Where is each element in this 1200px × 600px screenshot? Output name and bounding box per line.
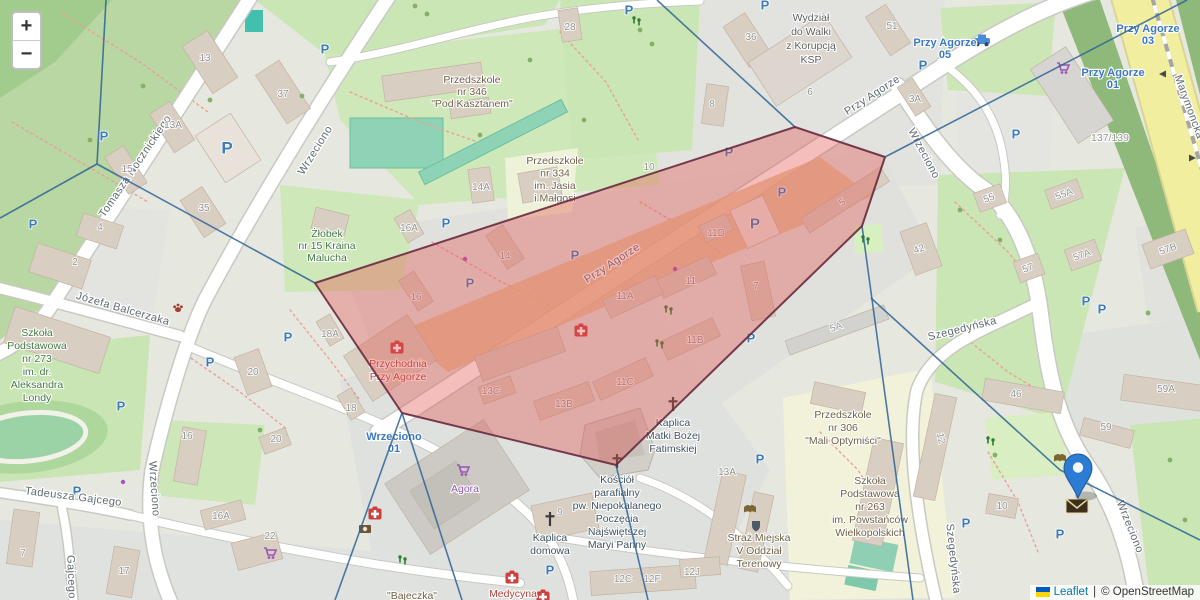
building-number: 20 [247,367,259,378]
library-book-icon [1054,454,1066,462]
building-number: 28 [564,22,576,33]
building-number: 51 [886,21,898,32]
building-number: 7 [20,548,26,559]
poi-label-line: z Korupcją [786,40,836,52]
ukraine-flag-icon [1036,587,1050,597]
parking-icon: P [1056,527,1065,542]
shop-dot-icon [121,480,125,484]
building-number: 14A [472,182,490,193]
map-canvas[interactable]: PPPPPPPPPPPPPPPPPPPPPPPPP Tomasza Noczni… [0,0,1200,600]
tree-icon [650,42,655,47]
building-number: 13A [718,467,736,478]
tree-icon [413,4,418,9]
transit-stop-line: Przy Agorze [1081,67,1144,79]
tree-icon [998,238,1003,243]
building-number: 20 [270,434,282,445]
tree-icon [425,12,430,17]
poi-label-line: "Mali Optymiści" [805,435,881,447]
poi-label-line: Przedszkole [443,74,500,86]
poi-label-line: Medycyna [489,588,537,600]
poi-label-line: parafialny [594,487,640,499]
poi-label-line: Terenowy [737,558,783,570]
building-number: 35 [198,203,210,214]
poi-label-line: Przedszkole [814,409,871,421]
parking-icon: P [1082,294,1091,309]
transit-stop-line: Przy Agorze [913,37,976,49]
poi-label-line: do Walki [791,26,831,38]
building-number: 13 [199,53,211,64]
building-number: 16A [400,223,418,234]
tree-icon [1183,518,1188,523]
tree-icon [993,453,998,458]
parking-icon: P [206,355,215,370]
poi-label-line: "Pod Kasztanem" [431,98,513,110]
zoom-out-button[interactable]: − [13,41,40,68]
parking-icon: P [919,58,928,73]
building-number: 17 [118,566,130,577]
tree-icon [141,84,146,89]
parking-icon: P [546,563,555,578]
poi-label-line: "Bajeczka" [387,590,437,600]
poi-label-line: nr 273 [22,353,52,365]
poi-label-line: Matki Bożej [646,430,700,442]
leaflet-link[interactable]: Leaflet [1054,586,1089,598]
poi-label-line: KSP [800,54,821,66]
poi-label-line: Malucha [307,252,347,264]
tree-icon [638,28,643,33]
zoom-control: + − [11,11,42,70]
post-office-envelope-icon [1066,499,1088,513]
building-number: 4 [97,222,103,233]
building-number: 18A [321,329,339,340]
tree-icon [528,58,533,63]
attribution-separator: | [1093,586,1096,598]
poi-label: Medycyna [489,588,537,600]
tree-icon [258,428,263,433]
building-number: 2 [72,257,78,268]
building-number: 12F [643,574,660,585]
parking-icon: P [442,216,451,231]
tree-icon [300,94,305,99]
poi-label: "Bajeczka" [387,590,437,600]
tree-icon [88,138,93,143]
poi-label-line: nr 334 [540,168,570,180]
building-number: 10 [643,162,655,173]
leaflet-attribution: Leaflet | © OpenStreetMap [1030,585,1200,600]
poi-label: Straż MiejskaV OddziałTerenowy [727,532,790,570]
building-number: 16 [181,431,193,442]
parking-icon: P [100,129,109,144]
poi-label-line: Żłobek [311,227,343,240]
parking-icon: P [117,399,126,414]
tree-icon [1168,458,1173,463]
poi-label-line: Poczęcia [596,513,639,525]
osm-link[interactable]: © OpenStreetMap [1101,586,1194,598]
parking-icon: P [1012,127,1021,142]
poi-label-line: nr 263 [855,501,885,513]
building-number: 6 [807,87,813,98]
poi-label-line: V Oddział [736,545,782,557]
poi-label-line: Wydział [793,12,830,24]
parking-icon: P [321,42,330,57]
tree-icon [208,98,213,103]
transit-stop-line: 03 [1142,35,1154,47]
poi-label-line: im. dr. [23,366,52,378]
poi-label-line: nr 306 [828,422,858,434]
poi-label-line: Szkoła [854,475,886,487]
poi-label-line: Fatimskiej [649,443,696,455]
poi-label-line: Kaplica [533,532,568,544]
building-number: 16A [212,511,230,522]
parking-icon: P [221,139,232,158]
building-number: 3A [909,94,922,105]
building-number: 18 [345,403,357,414]
poi-label-line: Aleksandra [11,379,64,391]
building-number: 46 [1010,389,1022,400]
poi-label-line: im. Jasia [534,180,576,192]
library-book-icon [744,505,756,513]
parking-icon: P [962,516,971,531]
building-number: 59 [1100,422,1112,433]
poi-label: Kaplicadomowa [530,532,570,557]
building-number: 15 [121,164,133,175]
poi-label-line: domowa [530,545,570,557]
poi-label-line: Londy [23,392,52,404]
map-svg: PPPPPPPPPPPPPPPPPPPPPPPPP Tomasza Noczni… [0,0,1200,600]
street-label: Gajcego [64,555,78,599]
poi-label-line: 137/139 [1091,132,1129,144]
building-number: 12J [684,567,700,578]
poi-label: Agora [451,483,479,495]
poi-label-line: Maryi Panny [588,539,647,551]
tree-icon [1146,311,1151,316]
poi-label: 137/139 [1091,132,1129,144]
poi-label-line: nr 346 [457,86,487,98]
poi-label-line: Wielkopolskich [835,527,905,539]
transit-stop-line: Przy Agorze [1116,23,1179,35]
transit-stop-line: 05 [939,49,951,61]
poi-label-line: Szkoła [21,327,53,339]
poi-label-line: Najświętszej [588,526,646,538]
poi-label-line: nr 15 Kraina [298,240,355,252]
poi-label-line: Agora [451,483,479,495]
poi-label-line: pw. Niepokalanego [573,500,662,512]
poi-label-line: Podstawowa [840,488,900,500]
poi-label-line: Podstawowa [7,340,67,352]
parking-icon: P [625,3,634,18]
zoom-in-button[interactable]: + [13,13,40,41]
marker-pin-hole [1073,462,1083,472]
building-number: 12C [614,574,632,585]
poi-label-line: im. Powstańców [832,514,908,526]
parking-icon: P [1098,302,1107,317]
parking-icon: P [761,0,770,13]
poi-label: Przedszkolenr 334im. Jasiai Małgosi [526,155,583,205]
poi-label-line: Straż Miejska [727,532,790,544]
parking-icon: P [756,452,765,467]
building-number: 37 [277,89,289,100]
tree-icon [582,118,587,123]
parking-icon: P [284,330,293,345]
building-number: 13A [164,120,182,131]
poi-label-line: Kościół [600,474,635,486]
building-number: 8 [709,99,715,110]
parking-icon: P [29,217,38,232]
transit-stop-line: 01 [1107,79,1119,91]
building-number: 59A [1157,384,1175,395]
building-number: 36 [745,32,757,43]
building-number: 9 [557,507,563,518]
building-number: 22 [264,531,276,542]
building-number: 10 [996,501,1008,512]
poi-label-line: Przedszkole [526,155,583,167]
tree-icon [478,133,483,138]
tree-icon [958,208,963,213]
